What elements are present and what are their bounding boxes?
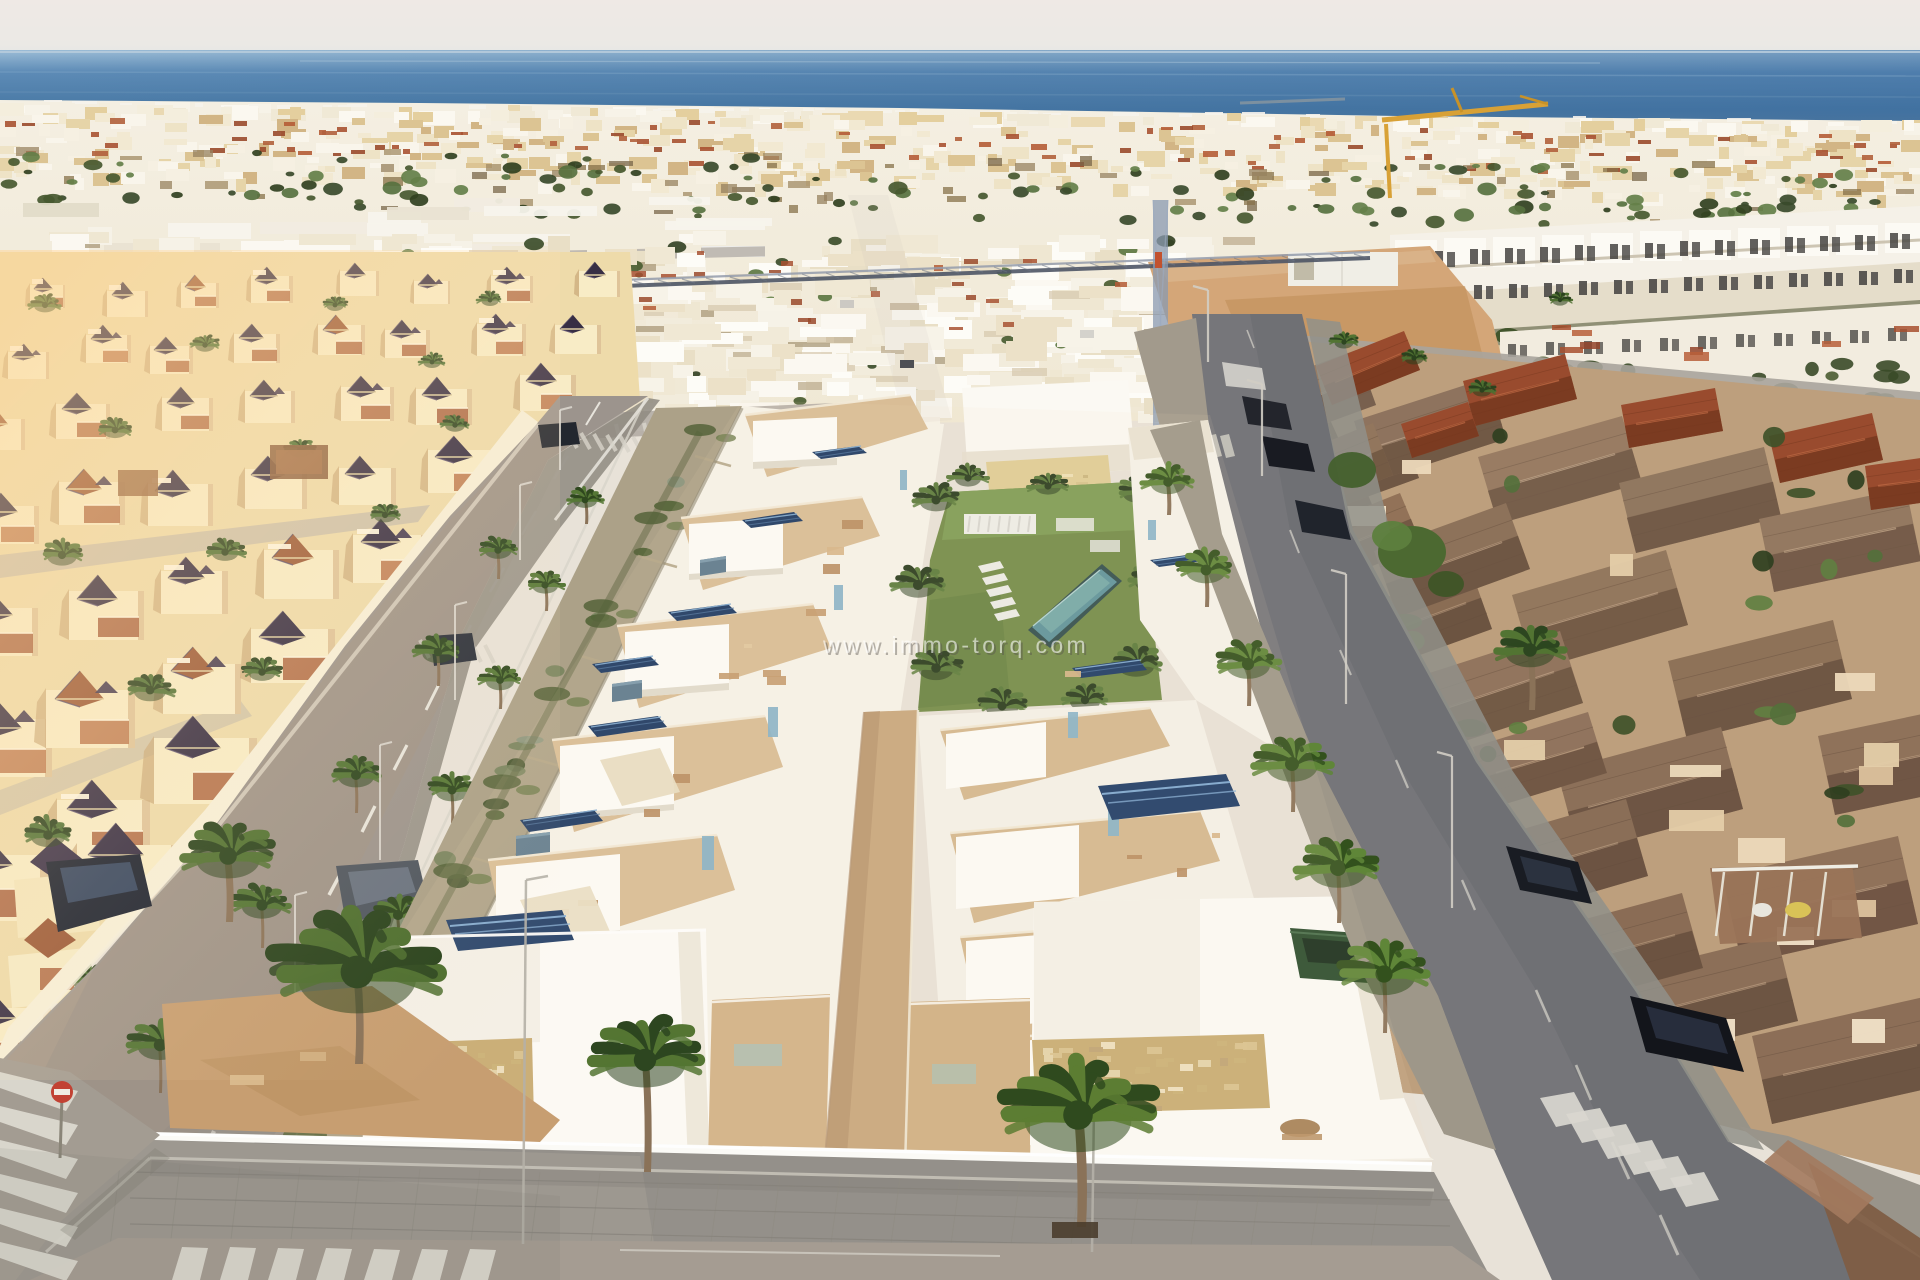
svg-text:www.immo-torq.com: www.immo-torq.com bbox=[822, 632, 1089, 658]
